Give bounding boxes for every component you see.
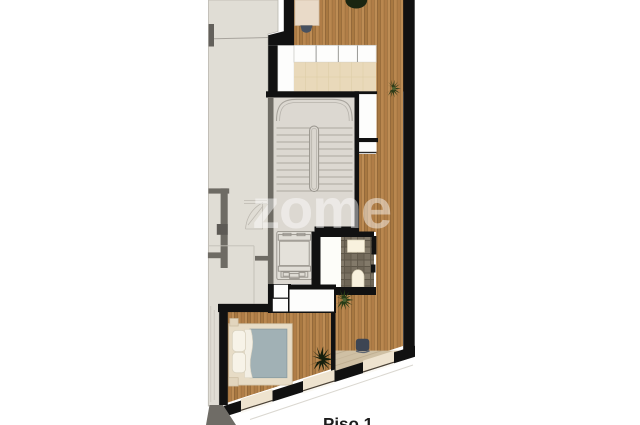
- svg-text:Piso 1: Piso 1: [323, 415, 373, 425]
- svg-text:zome: zome: [252, 177, 391, 240]
